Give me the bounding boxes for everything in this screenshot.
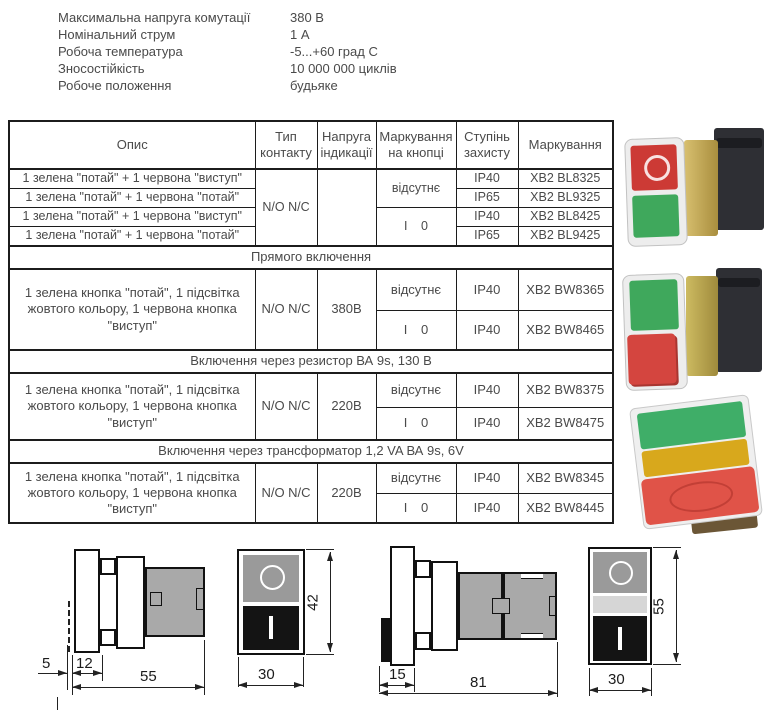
spec-list: Максимальна напруга комутації 380 В Номі… xyxy=(58,9,397,94)
dim-label-30: 30 xyxy=(258,666,275,683)
col-header-ip: Ступінь захисту xyxy=(456,121,518,169)
drawing3-block-detail xyxy=(492,598,510,614)
cell-ip: IP40 xyxy=(456,269,518,310)
cell-ip: IP40 xyxy=(456,310,518,350)
drawing1-bezel xyxy=(74,549,100,653)
product-table: Опис Тип контакту Напруга індикації Марк… xyxy=(8,120,614,524)
spec-row: Номінальний струм 1 А xyxy=(58,26,397,43)
cell-desc: 1 зелена "потай" + 1 червона "потай" xyxy=(9,189,255,208)
dim-label-12: 12 xyxy=(76,655,93,672)
section-title: Прямого включення xyxy=(9,246,613,269)
cell-contact: N/O N/C xyxy=(255,169,317,246)
col-header-voltage: Напруга індикації xyxy=(317,121,376,169)
cell-desc: 1 зелена кнопка "потай", 1 підсвітка жов… xyxy=(9,269,255,350)
block-notch xyxy=(521,574,543,579)
red-button xyxy=(630,144,678,191)
contact-block-detail xyxy=(716,138,762,148)
cell-ip: IP40 xyxy=(456,463,518,493)
dim-line-30b xyxy=(589,690,651,691)
dim-line-55v xyxy=(676,550,677,662)
extension-line xyxy=(204,640,205,695)
spec-label: Робоче положення xyxy=(58,77,290,94)
dim-label-15: 15 xyxy=(389,666,406,683)
extension-line xyxy=(557,642,558,697)
dim-label-81: 81 xyxy=(470,674,487,691)
drawing3-collar xyxy=(431,561,458,651)
button-bezel xyxy=(624,137,688,247)
cell-contact: N/O N/C xyxy=(255,463,317,523)
drawing4-lens-window xyxy=(593,596,647,613)
section-title: Включення через резистор ВА 9s, 130 В xyxy=(9,350,613,373)
stop-ring-icon xyxy=(668,478,735,516)
red-button-projecting xyxy=(627,333,677,385)
datasheet-page: Максимальна напруга комутації 380 В Номі… xyxy=(0,0,770,710)
cell-code: XB2 BL9325 xyxy=(518,189,613,208)
cell-code: XB2 BW8345 xyxy=(518,463,613,493)
spec-value: 10 000 000 циклів xyxy=(290,60,397,77)
stop-symbol-circle xyxy=(609,561,633,585)
cell-ip: IP40 xyxy=(456,407,518,440)
cell-ip: IP40 xyxy=(456,208,518,227)
cell-marking: І 0 xyxy=(376,208,456,247)
cell-marking: І 0 xyxy=(376,407,456,440)
extension-line xyxy=(653,547,681,548)
dim-line-55 xyxy=(72,687,204,688)
drawing1-block-detail xyxy=(150,592,162,606)
cell-code: XB2 BW8365 xyxy=(518,269,613,310)
dim-line-30 xyxy=(238,685,303,686)
drawing4-start-button xyxy=(593,616,647,661)
cell-ip: IP40 xyxy=(456,493,518,523)
drawing4-stop-button xyxy=(593,552,647,593)
spec-row: Максимальна напруга комутації 380 В xyxy=(58,9,397,26)
dim-line-81 xyxy=(379,693,557,694)
col-header-desc: Опис xyxy=(9,121,255,169)
cell-ip: IP40 xyxy=(456,169,518,189)
product-photo-red-green-side xyxy=(622,112,768,248)
drawing2-start-button xyxy=(243,606,299,650)
spec-row: Зносостійкість 10 000 000 циклів xyxy=(58,60,397,77)
extension-line xyxy=(306,654,334,655)
spec-value: 1 А xyxy=(290,26,310,43)
cell-desc: 1 зелена "потай" + 1 червона "виступ" xyxy=(9,208,255,227)
cell-marking: відсутнє xyxy=(376,169,456,208)
extension-line xyxy=(653,664,681,665)
extension-line xyxy=(303,657,304,687)
cell-marking: І 0 xyxy=(376,310,456,350)
table-row: 1 зелена "потай" + 1 червона "виступ" N/… xyxy=(9,169,613,189)
dim-line-42 xyxy=(330,552,331,652)
col-header-marking: Маркування xyxy=(518,121,613,169)
spec-label: Номінальний струм xyxy=(58,26,290,43)
extension-line xyxy=(651,668,652,696)
product-photo-front-illuminated xyxy=(628,395,768,537)
cell-contact: N/O N/C xyxy=(255,373,317,440)
spec-value: будьяке xyxy=(290,77,338,94)
cell-ip: IP65 xyxy=(456,227,518,247)
cell-code: XB2 BW8475 xyxy=(518,407,613,440)
cell-contact: N/O N/C xyxy=(255,269,317,350)
section-header-row: Включення через трансформатор 1,2 VA ВА … xyxy=(9,440,613,463)
cell-desc: 1 зелена "потай" + 1 червона "виступ" xyxy=(9,169,255,189)
section-header-row: Прямого включення xyxy=(9,246,613,269)
cell-marking: І 0 xyxy=(376,493,456,523)
cell-code: XB2 BW8465 xyxy=(518,310,613,350)
cell-code: XB2 BL8425 xyxy=(518,208,613,227)
drawing3-clip-bottom xyxy=(415,632,431,650)
table-row: 1 зелена кнопка "потай", 1 підсвітка жов… xyxy=(9,373,613,407)
table-row: 1 зелена кнопка "потай", 1 підсвітка жов… xyxy=(9,269,613,310)
mounting-body xyxy=(686,276,718,376)
table-header-row: Опис Тип контакту Напруга індикації Марк… xyxy=(9,121,613,169)
button-face xyxy=(629,394,763,530)
green-button xyxy=(632,194,679,238)
stop-symbol-circle xyxy=(260,565,285,590)
cell-ip: IP65 xyxy=(456,189,518,208)
drawing3-bezel xyxy=(390,546,415,666)
cell-code: XB2 BW8375 xyxy=(518,373,613,407)
dim-label-55v: 55 xyxy=(651,594,668,620)
cell-code: XB2 BL8325 xyxy=(518,169,613,189)
cell-voltage: 380В xyxy=(317,269,376,350)
cell-voltage: 220В xyxy=(317,373,376,440)
drawing1-panel-dashed-line xyxy=(68,601,70,652)
section-title: Включення через трансформатор 1,2 VA ВА … xyxy=(9,440,613,463)
contact-block-detail xyxy=(718,278,760,287)
cell-desc: 1 зелена "потай" + 1 червона "потай" xyxy=(9,227,255,247)
col-header-marking-btn: Маркування на кнопці xyxy=(376,121,456,169)
spec-value: -5...+60 град С xyxy=(290,43,378,60)
col-header-contact: Тип контакту xyxy=(255,121,317,169)
extension-line xyxy=(306,549,334,550)
drawing1-clip-bottom xyxy=(100,629,116,646)
extension-line xyxy=(67,645,68,690)
dim-label-55: 55 xyxy=(140,668,157,685)
spec-label: Максимальна напруга комутації xyxy=(58,9,290,26)
spec-row: Робоче положення будьяке xyxy=(58,77,397,94)
dim-label-30b: 30 xyxy=(608,671,625,688)
cell-ip: IP40 xyxy=(456,373,518,407)
start-symbol-bar xyxy=(618,627,622,650)
drawing3-block-detail xyxy=(549,596,557,616)
mounting-body xyxy=(684,140,718,236)
drawing1-collar xyxy=(116,556,145,649)
dim-line-5 xyxy=(38,673,67,674)
stop-ring-icon xyxy=(644,154,671,181)
green-button xyxy=(629,279,679,331)
product-photo-green-red-side xyxy=(618,254,768,392)
button-bezel xyxy=(622,273,688,391)
dim-line-15 xyxy=(379,685,414,686)
drawing2-stop-button xyxy=(243,555,299,602)
extension-line xyxy=(57,697,58,710)
start-symbol-bar xyxy=(269,616,273,639)
cell-voltage xyxy=(317,169,376,246)
spec-value: 380 В xyxy=(290,9,324,26)
dim-label-42: 42 xyxy=(305,590,322,616)
cell-voltage: 220В xyxy=(317,463,376,523)
extension-line xyxy=(414,668,415,692)
extension-line xyxy=(379,666,380,692)
drawing1-clip-top xyxy=(100,558,116,575)
cell-marking: відсутнє xyxy=(376,463,456,493)
dim-line-12 xyxy=(72,673,102,674)
cell-marking: відсутнє xyxy=(376,269,456,310)
block-notch xyxy=(521,633,543,638)
section-header-row: Включення через резистор ВА 9s, 130 В xyxy=(9,350,613,373)
spec-row: Робоча температура -5...+60 град С xyxy=(58,43,397,60)
cell-marking: відсутнє xyxy=(376,373,456,407)
cell-code: XB2 BW8445 xyxy=(518,493,613,523)
drawing3-clip-top xyxy=(415,560,431,578)
cell-desc: 1 зелена кнопка "потай", 1 підсвітка жов… xyxy=(9,373,255,440)
spec-label: Робоча температура xyxy=(58,43,290,60)
dim-label-5: 5 xyxy=(42,655,50,672)
table-row: 1 зелена кнопка "потай", 1 підсвітка жов… xyxy=(9,463,613,493)
spec-label: Зносостійкість xyxy=(58,60,290,77)
cell-desc: 1 зелена кнопка "потай", 1 підсвітка жов… xyxy=(9,463,255,523)
extension-line xyxy=(102,655,103,681)
drawing1-block-detail xyxy=(196,588,204,610)
cell-code: XB2 BL9425 xyxy=(518,227,613,247)
